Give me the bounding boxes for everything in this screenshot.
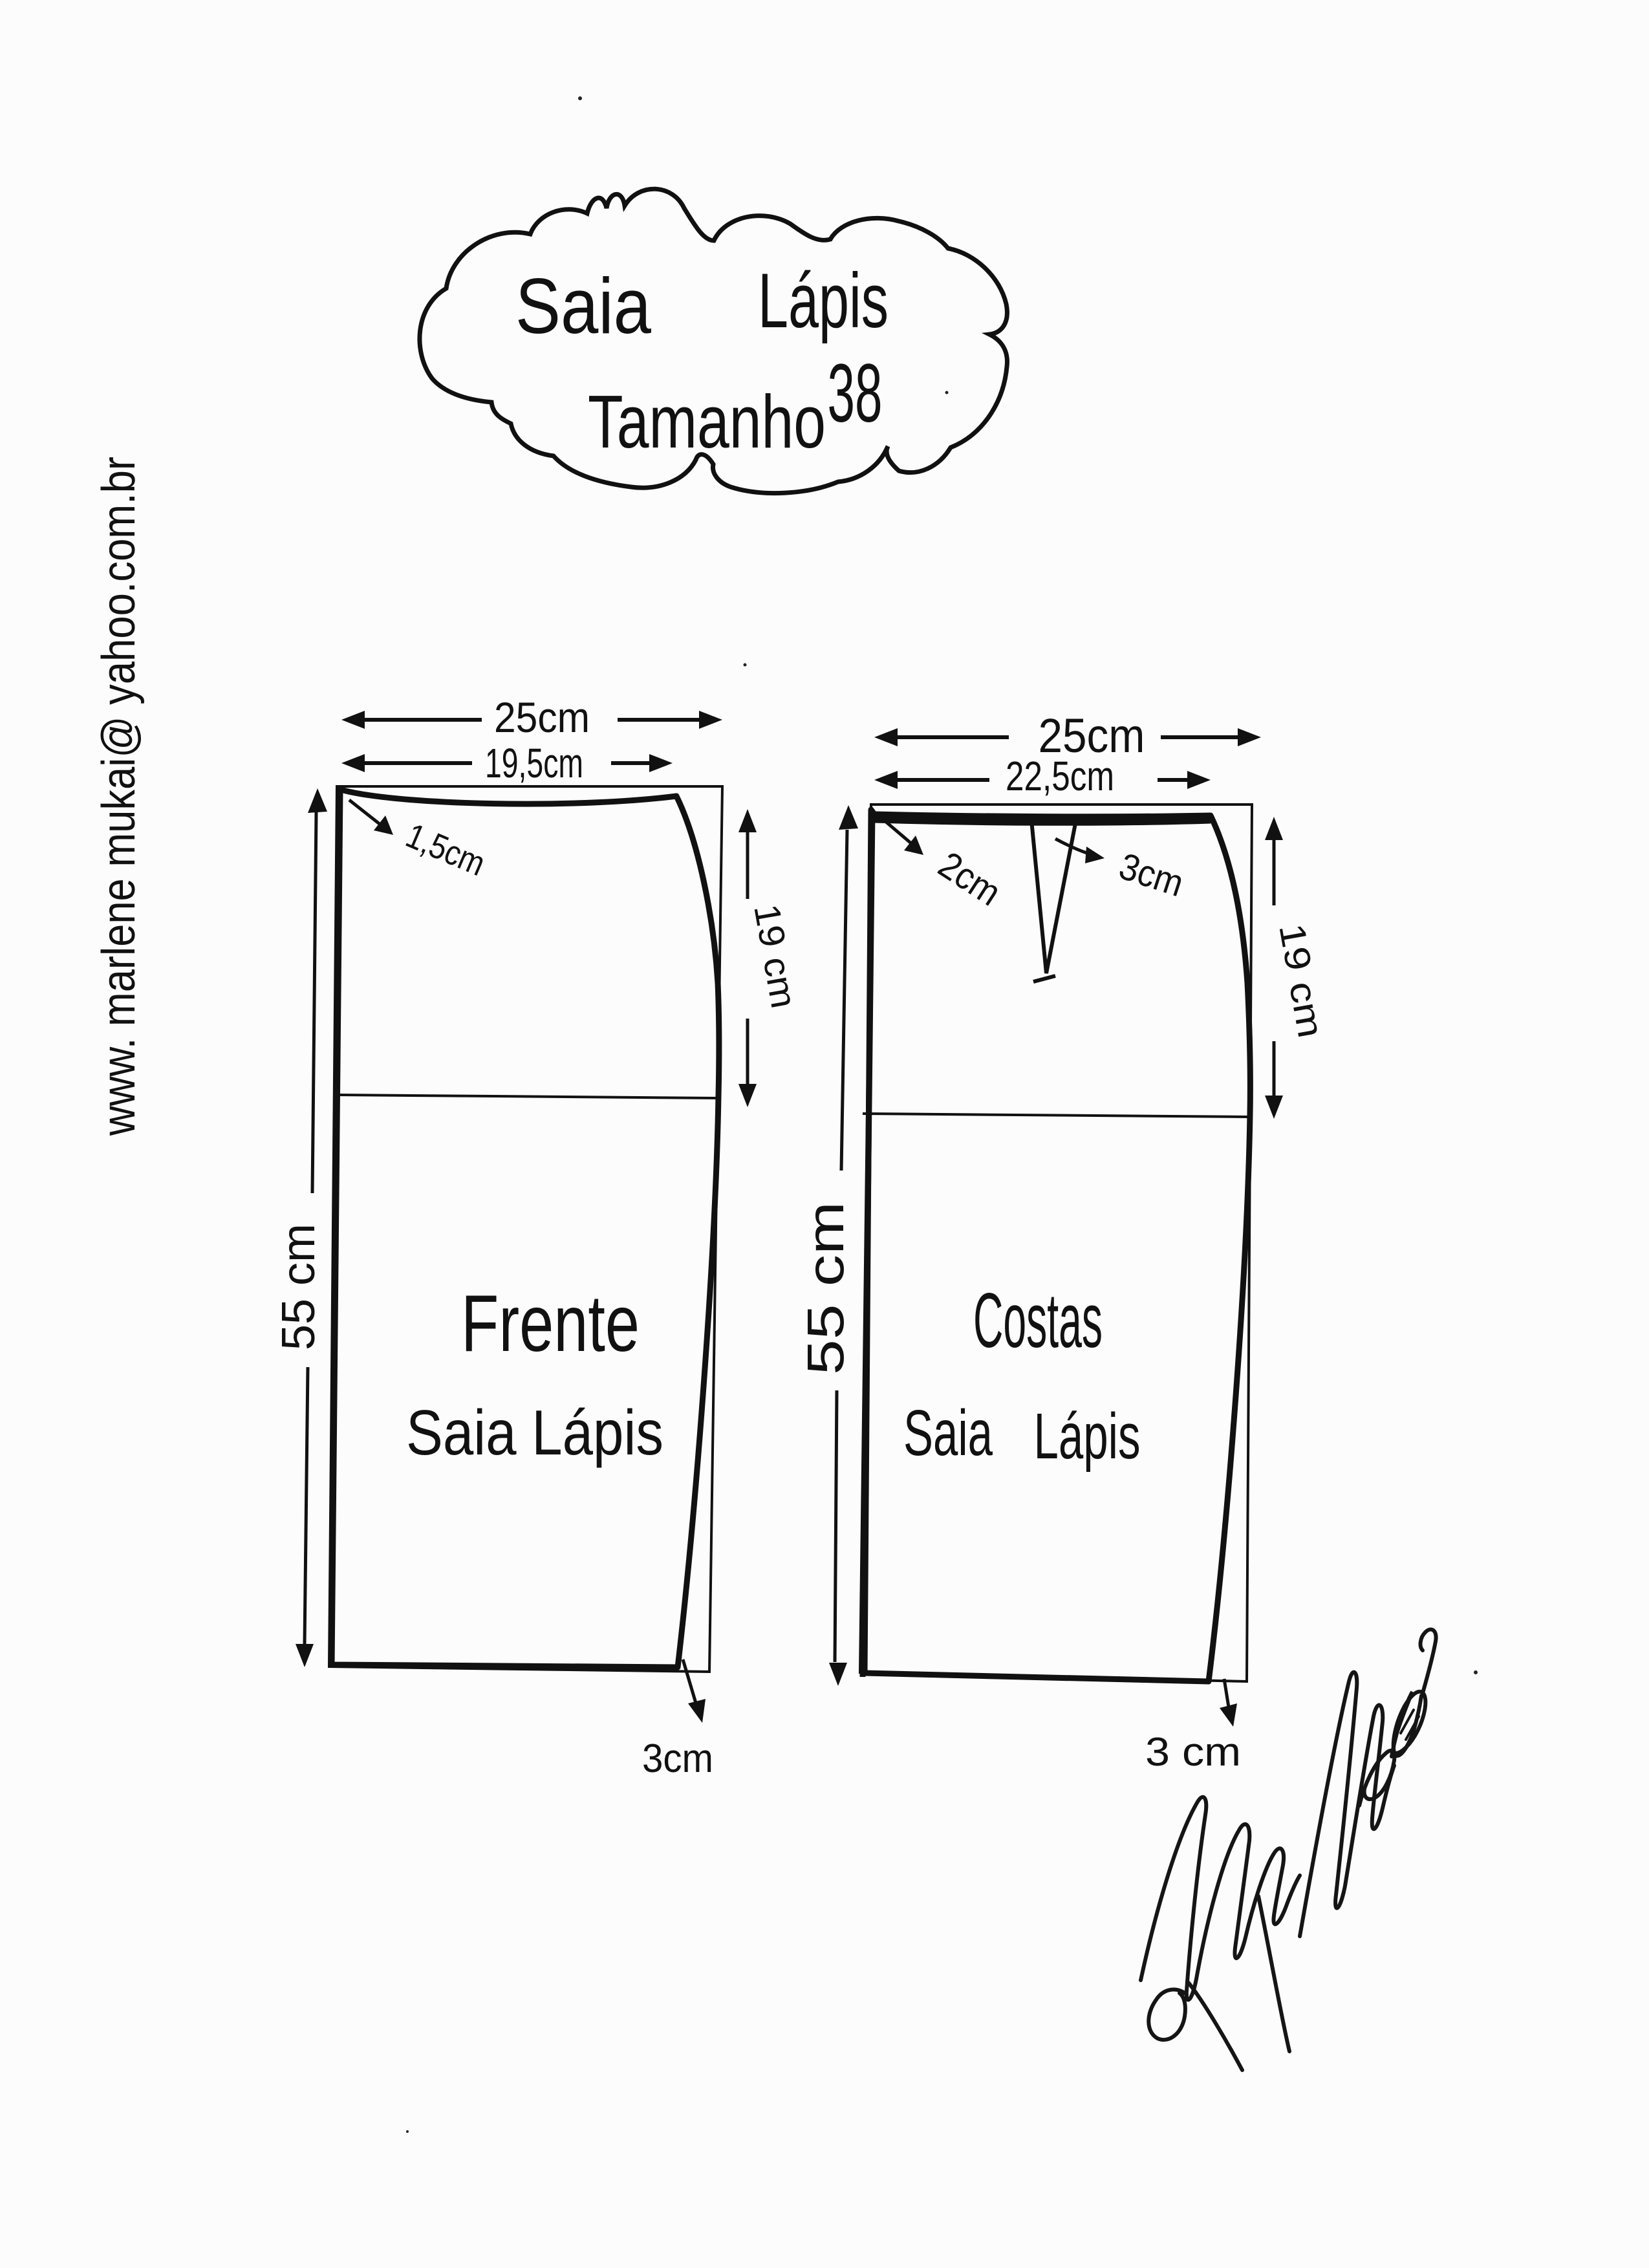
svg-text:Lápis: Lápis xyxy=(1034,1400,1141,1473)
svg-text:Lápis: Lápis xyxy=(758,257,889,344)
svg-text:www. marlene mukai@ yahoo.com.: www. marlene mukai@ yahoo.com.br xyxy=(93,457,145,1136)
svg-text:Saia: Saia xyxy=(515,262,651,350)
svg-text:Costas: Costas xyxy=(973,1277,1103,1364)
svg-text:Frente: Frente xyxy=(461,1279,640,1368)
svg-text:22,5cm: 22,5cm xyxy=(1006,753,1114,799)
svg-text:38: 38 xyxy=(828,347,883,440)
svg-text:Saia: Saia xyxy=(903,1397,993,1469)
svg-text:Tamanho: Tamanho xyxy=(588,380,826,464)
svg-text:3 cm: 3 cm xyxy=(1145,1730,1241,1775)
svg-text:19,5cm: 19,5cm xyxy=(485,740,583,786)
svg-text:Saia Lápis: Saia Lápis xyxy=(406,1397,663,1468)
svg-text:55 cm: 55 cm xyxy=(797,1202,854,1375)
svg-text:55 cm: 55 cm xyxy=(273,1224,325,1350)
svg-text:3cm: 3cm xyxy=(642,1736,713,1781)
svg-text:25cm: 25cm xyxy=(494,693,590,741)
